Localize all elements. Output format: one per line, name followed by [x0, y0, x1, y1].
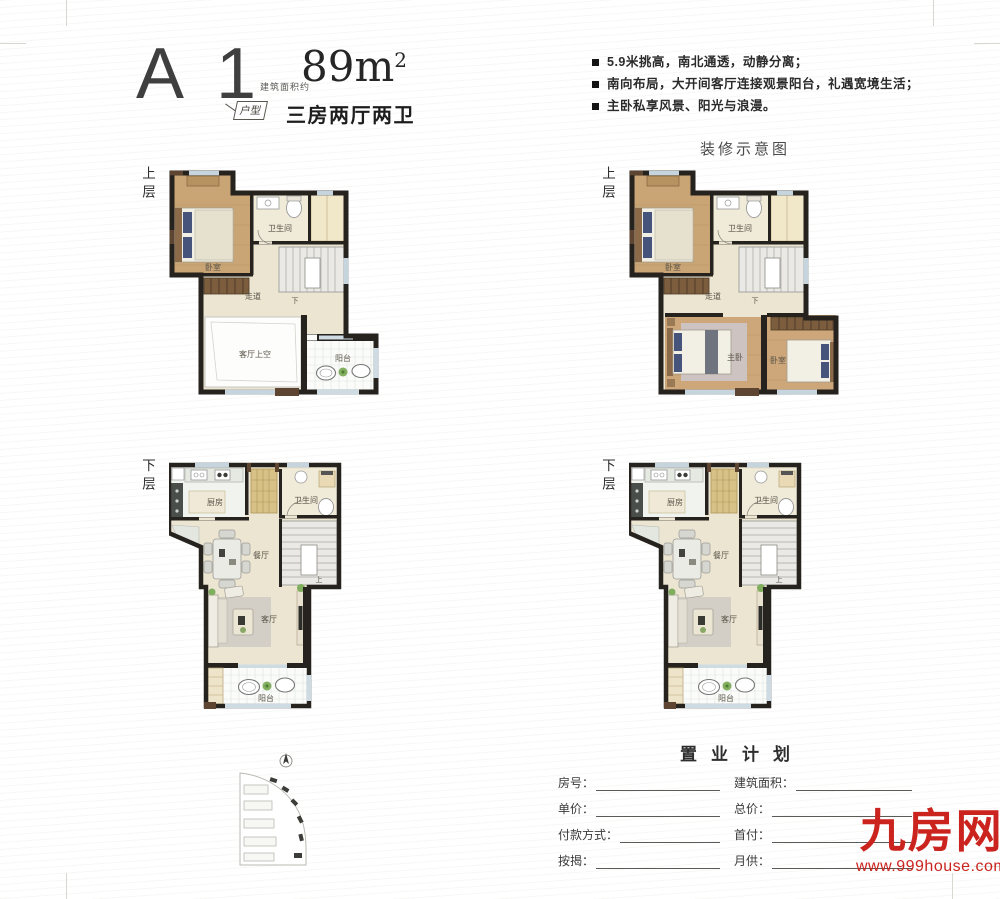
brochure-page: A 1 户型 建筑面积约 89m2 三房两厅两卫 5.9米挑高，南北通透，动静分… [0, 0, 1000, 899]
room-label-bedroom: 卧室 [205, 262, 221, 272]
unit-tag: 户型 [233, 101, 268, 120]
stair-direction-label: 下 [292, 297, 299, 305]
entry-mat [711, 469, 737, 513]
fridge [632, 468, 644, 480]
plan-lower-right: 厨房 卫生间 餐厅 上 客厅 阳台 [629, 461, 804, 716]
entry-mat [251, 469, 277, 513]
wardrobe [204, 278, 249, 294]
master-bedroom [665, 317, 761, 390]
brand-logo: 九房网 www.999house.com [856, 806, 1000, 876]
fridge [172, 468, 184, 480]
crop-mark [952, 873, 953, 899]
floor-label-upper-left: 上层 [137, 166, 157, 203]
bullet-square-icon [592, 81, 599, 88]
field-label-total-price: 总价： [734, 800, 770, 817]
bullet-square-icon [592, 103, 599, 110]
form-row: 房号： 建筑面积： [558, 774, 912, 791]
brand-name: 九房网 [856, 806, 1000, 857]
room-label-bathroom: 卫生间 [754, 495, 778, 505]
balcony-tub [276, 678, 295, 692]
feature-list: 5.9米挑高，南北通透，动静分离； 南向布局，大开间客厅连接观景阳台，礼遇宽境生… [592, 56, 919, 122]
closet [771, 195, 804, 241]
site-plan [232, 747, 317, 872]
balcony-tub [317, 366, 336, 380]
field-line-room-no [596, 777, 720, 791]
balcony-tub [239, 680, 260, 695]
room-label-living-void: 客厅上空 [239, 349, 271, 359]
feature-text: 南向布局，大开间客厅连接观景阳台，礼遇宽境生活； [607, 78, 919, 91]
balcony-tub [736, 678, 755, 692]
room-label-kitchen: 厨房 [207, 497, 223, 507]
wardrobe [664, 278, 709, 294]
area-exponent: 2 [394, 48, 407, 72]
floorplan-lower: 厨房 卫生间 餐厅 上 客厅 阳台 [629, 461, 804, 711]
feature-text: 5.9米挑高，南北通透，动静分离； [607, 56, 808, 69]
feature-item: 南向布局，大开间客厅连接观景阳台，礼遇宽境生活； [592, 78, 919, 91]
decorated-plan-title: 装修示意图 [655, 138, 835, 159]
field-label-payment-method: 付款方式： [558, 826, 618, 843]
kitchen [171, 467, 245, 519]
crop-mark [66, 873, 67, 899]
plan-lower-left: 厨房 卫生间 餐厅 上 客厅 阳台 [169, 461, 344, 716]
form-title: 置业计划 [558, 740, 912, 765]
field-label-mortgage: 按揭： [558, 852, 594, 869]
room-label-bathroom: 卫生间 [268, 223, 292, 233]
floor-label-lower-right: 下层 [597, 458, 617, 495]
feature-item: 5.9米挑高，南北通透，动静分离； [592, 56, 919, 69]
room-label-balcony: 阳台 [335, 353, 351, 363]
feature-text: 主卧私享风景、阳光与浪漫。 [607, 100, 776, 113]
layout-description: 三房两厅两卫 [286, 99, 415, 128]
feature-item: 主卧私享风景、阳光与浪漫。 [592, 100, 919, 113]
balcony-tub [352, 365, 370, 378]
plan-upper-left: 卧室 卫生间 走道 下 客厅上空 阳台 [167, 170, 382, 403]
unit-type-code: A 1 [136, 38, 264, 110]
plant [669, 589, 676, 596]
stair-direction-label: 上 [316, 575, 323, 584]
room-label-corridor: 走道 [245, 291, 261, 301]
field-line-unit-price [596, 803, 720, 817]
room-label-bathroom: 卫生间 [294, 495, 318, 505]
floor-label-lower-left: 下层 [137, 458, 157, 495]
room-label-living: 客厅 [721, 614, 737, 624]
room-label-balcony: 阳台 [258, 693, 274, 703]
field-line-area [796, 777, 912, 791]
field-label-down-payment: 首付： [734, 826, 770, 843]
plan-upper-right: 卧室 卫生间 走道 下 主卧 卧室 [627, 170, 842, 403]
room-label-balcony: 阳台 [718, 693, 734, 703]
area-number: 89m [301, 42, 394, 91]
bullet-square-icon [592, 59, 599, 66]
stairs [279, 247, 344, 292]
balcony [305, 334, 376, 392]
desk [647, 176, 679, 186]
stair-direction-label: 下 [752, 297, 759, 305]
crop-mark [66, 0, 67, 26]
room-label-bedroom: 卧室 [665, 262, 681, 272]
plan-lower-right-slot: 厨房 卫生间 餐厅 上 客厅 阳台 [629, 461, 804, 716]
crop-mark [0, 43, 26, 44]
bed [175, 208, 233, 262]
floorplan-lower: 厨房 卫生间 餐厅 上 客厅 阳台 [169, 461, 344, 711]
room-label-bedroom2: 卧室 [770, 355, 786, 365]
room-label-dining: 餐厅 [713, 551, 729, 560]
room-label-living: 客厅 [261, 614, 277, 624]
stairs [281, 521, 337, 585]
bathroom [281, 469, 337, 517]
stairs [741, 521, 797, 585]
floor-label-upper-right: 上层 [597, 166, 617, 203]
crop-mark [933, 0, 934, 26]
bed [635, 208, 693, 262]
plant [209, 589, 216, 596]
north-arrow-icon [280, 753, 292, 767]
room-label-corridor: 走道 [705, 291, 721, 301]
field-label-monthly-payment: 月供： [734, 852, 770, 869]
room-label-dining: 餐厅 [253, 551, 269, 560]
bathroom [741, 469, 797, 517]
field-label-room-no: 房号： [558, 774, 594, 791]
crop-mark [974, 43, 1000, 44]
stair-direction-label: 上 [776, 575, 783, 584]
kitchen [631, 467, 705, 519]
field-line-payment-method [620, 829, 720, 843]
floorplan-upper-original: 卧室 卫生间 走道 下 客厅上空 阳台 [167, 170, 382, 398]
closet [311, 195, 344, 241]
second-bedroom [767, 315, 836, 392]
floorplan-upper-decorated: 卧室 卫生间 走道 下 主卧 卧室 [627, 170, 842, 398]
room-label-kitchen: 厨房 [667, 497, 683, 507]
room-label-bathroom: 卫生间 [728, 223, 752, 233]
area-value: 89m2 [301, 46, 407, 88]
field-label-area: 建筑面积： [734, 774, 794, 791]
balcony-tub [699, 680, 720, 695]
brand-website: www.999house.com [856, 858, 1000, 876]
room-label-master: 主卧 [727, 352, 743, 362]
desk [187, 176, 219, 186]
field-label-unit-price: 单价： [558, 800, 594, 817]
stairs [739, 247, 804, 292]
field-line-mortgage [596, 855, 720, 869]
